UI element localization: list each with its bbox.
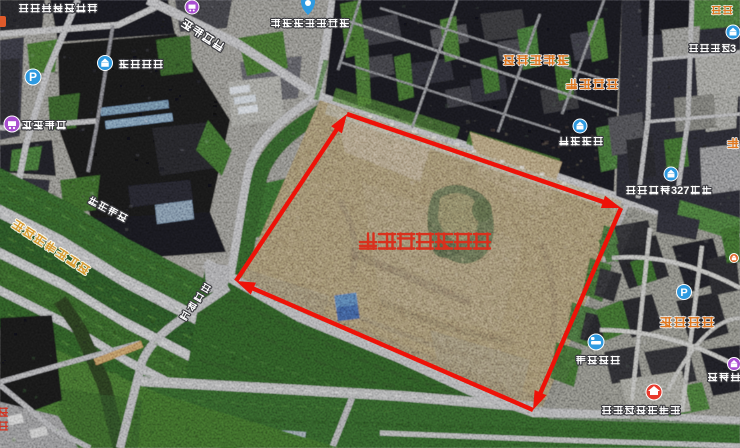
svg-text:P: P — [680, 287, 687, 299]
svg-text:3: 3 — [730, 43, 736, 55]
svg-text:327: 327 — [671, 185, 689, 197]
svg-text:P: P — [29, 70, 37, 84]
